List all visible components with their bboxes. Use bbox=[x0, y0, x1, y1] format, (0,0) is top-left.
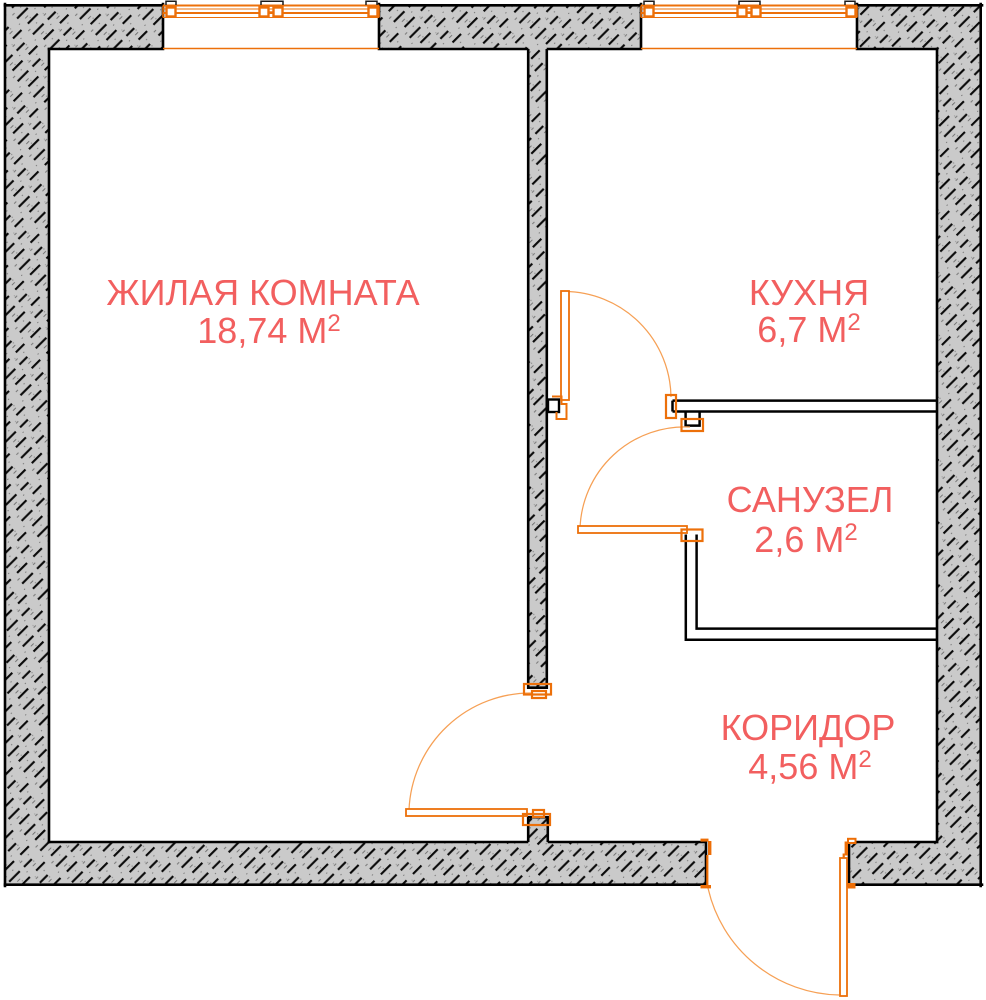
svg-text:18,74 М2: 18,74 М2 bbox=[197, 310, 340, 351]
svg-text:САНУЗЕЛ: САНУЗЕЛ bbox=[727, 479, 894, 520]
svg-text:КОРИДОР: КОРИДОР bbox=[721, 707, 896, 748]
svg-text:КУХНЯ: КУХНЯ bbox=[749, 272, 869, 313]
svg-text:2,6 М2: 2,6 М2 bbox=[754, 519, 857, 560]
svg-text:6,7 М2: 6,7 М2 bbox=[757, 309, 860, 350]
svg-text:4,56 М2: 4,56 М2 bbox=[748, 746, 871, 787]
svg-text:ЖИЛАЯ КОМНАТА: ЖИЛАЯ КОМНАТА bbox=[106, 272, 419, 313]
